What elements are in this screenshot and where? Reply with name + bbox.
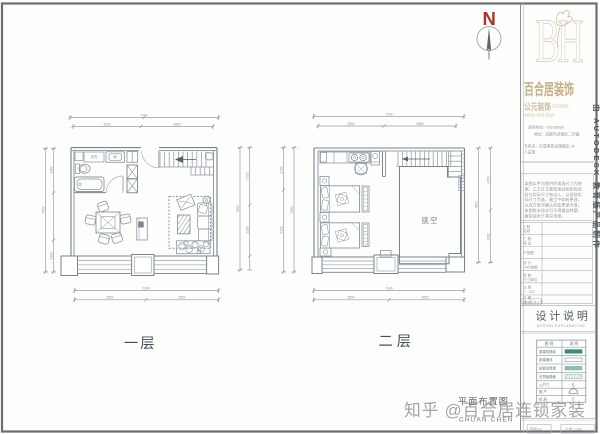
svg-text:据，乙方在丈量现场后绘制而成: 据，乙方在丈量现场后绘制而成 (525, 185, 582, 191)
svg-text:2100: 2100 (246, 226, 250, 233)
svg-text:4450: 4450 (486, 176, 490, 183)
svg-text:二层: 二层 (379, 334, 415, 350)
svg-text:专卖店：红星美凯龙旗舰店 3F: 专卖店：红星美凯龙旗舰店 3F (524, 144, 576, 149)
svg-text:设 计: 设 计 (523, 260, 532, 265)
svg-text:百合居装饰: 百合居装饰 (524, 80, 574, 99)
svg-text:八益家: 八益家 (524, 150, 536, 155)
svg-text:DESIGN EXPLANATION: DESIGN EXPLANATION (537, 324, 585, 328)
svg-text:轻钢龙骨墙: 轻钢龙骨墙 (539, 366, 557, 371)
svg-text:7240: 7240 (142, 286, 149, 290)
svg-text:洗衣: 洗衣 (91, 154, 98, 159)
svg-text:7850: 7850 (41, 206, 45, 213)
svg-text:2700: 2700 (279, 166, 283, 173)
svg-text:CAD制图: CAD制图 (523, 265, 538, 270)
svg-text:知乎 @百合居连锁家装: 知乎 @百合居连锁家装 (404, 401, 586, 420)
svg-text:一层: 一层 (124, 336, 156, 352)
svg-text:际尺寸为准。施工中如有更改，: 际尺寸为准。施工中如有更改， (525, 196, 582, 202)
svg-text:7240: 7240 (140, 113, 147, 117)
svg-text:7240: 7240 (385, 112, 392, 116)
svg-text:7850: 7850 (290, 206, 294, 213)
svg-text:比例 1:100: 比例 1:100 (565, 426, 582, 431)
svg-text:7850: 7850 (474, 201, 478, 208)
svg-text:S: S (571, 382, 574, 387)
svg-text:7240: 7240 (385, 286, 392, 290)
svg-text:地址：成都市武侯区二环路: 地址：成都市武侯区二环路 (534, 132, 580, 137)
svg-text:图号 01: 图号 01 (530, 426, 542, 431)
svg-text:比 例: 比 例 (523, 284, 532, 289)
svg-text:复制或用于其它用途。: 复制或用于其它用途。 (525, 212, 566, 218)
svg-text:名称: 名称 (523, 228, 531, 233)
svg-text:N: N (483, 8, 496, 29)
svg-text:审 核: 审 核 (523, 272, 532, 277)
svg-text:挑空: 挑空 (422, 216, 439, 225)
svg-text:7850: 7850 (236, 205, 240, 212)
svg-text:4000-028-518: 4000-028-518 (524, 113, 554, 119)
svg-text:若与实际尺寸有出入，以现场实: 若与实际尺寸有出入，以现场实 (525, 191, 582, 197)
svg-text:工 程: 工 程 (523, 236, 532, 241)
svg-text:新建墙体: 新建墙体 (539, 357, 553, 362)
svg-text:服务热线：028-85588: 服务热线：028-85588 (529, 125, 564, 130)
svg-text:3850: 3850 (173, 122, 180, 126)
svg-text:说 明: 说 明 (570, 341, 579, 346)
svg-text:本图以甲方提供的现场尺寸为依: 本图以甲方提供的现场尺寸为依 (525, 180, 582, 186)
svg-text:3590: 3590 (347, 296, 354, 300)
svg-text:入户门: 入户门 (539, 382, 550, 387)
svg-text:3390: 3390 (103, 122, 110, 126)
svg-text:设计说明: 设计说明 (536, 308, 591, 322)
svg-text:窗 户: 窗 户 (539, 389, 547, 394)
svg-text:本图纸未经许可不得擅自转载、: 本图纸未经许可不得擅自转载、 (525, 207, 582, 213)
svg-text:4450: 4450 (49, 166, 53, 173)
svg-text:由 AUTODESK 教育版产品制作: 由 AUTODESK 教育版产品制作 (592, 104, 600, 250)
svg-text:第 1 页 共 1 页: 第 1 页 共 1 页 (524, 299, 544, 304)
svg-text:3650: 3650 (421, 296, 428, 300)
svg-text:CS2005: CS2005 (552, 104, 569, 109)
svg-text:2100: 2100 (49, 252, 53, 259)
svg-text:5150: 5150 (279, 226, 283, 233)
svg-text:公元装饰: 公元装饰 (524, 101, 551, 112)
svg-text:1：100: 1：100 (523, 290, 535, 294)
svg-text:图 例: 图 例 (545, 341, 554, 346)
svg-text:尺寸单位: 尺寸单位 (523, 277, 538, 282)
svg-text:以双方签字确认的变更单为准。: 以双方签字确认的变更单为准。 (525, 202, 582, 208)
svg-text:3590: 3590 (106, 296, 113, 300)
svg-text:3400: 3400 (486, 233, 490, 240)
svg-text:工程: 工程 (523, 224, 531, 229)
svg-text:H: H (557, 8, 583, 76)
svg-text:3390: 3390 (347, 122, 354, 126)
svg-text:石膏板隔墙: 石膏板隔墙 (539, 374, 557, 379)
svg-text:5750: 5750 (246, 172, 250, 179)
svg-text:户型图: 户型图 (523, 250, 534, 255)
svg-text:原建筑墙体: 原建筑墙体 (539, 349, 557, 354)
svg-text:3850: 3850 (416, 122, 423, 126)
svg-text:3650: 3650 (178, 296, 185, 300)
svg-text:地 址: 地 址 (523, 240, 532, 245)
